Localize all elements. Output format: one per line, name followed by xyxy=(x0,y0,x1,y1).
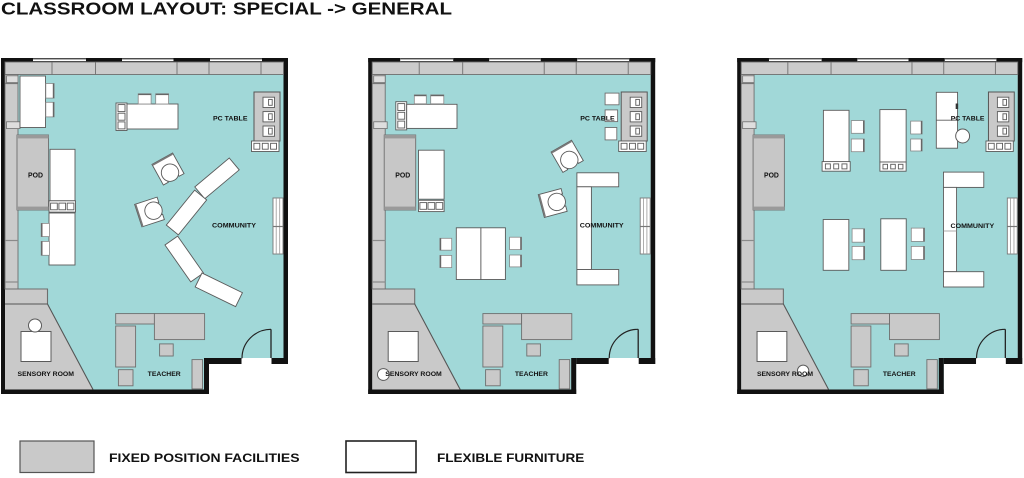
svg-text:CLASSROOM LAYOUT: SPECIAL -> G: CLASSROOM LAYOUT: SPECIAL -> GENERAL xyxy=(1,0,452,19)
svg-text:POD: POD xyxy=(764,172,779,179)
svg-text:SENSORY ROOM: SENSORY ROOM xyxy=(757,371,813,378)
svg-text:TEACHER: TEACHER xyxy=(515,371,548,378)
svg-text:FIXED POSITION FACILITIES: FIXED POSITION FACILITIES xyxy=(109,451,300,465)
svg-text:COMMUNITY: COMMUNITY xyxy=(212,223,256,230)
svg-text:PC TABLE: PC TABLE xyxy=(951,116,985,123)
svg-text:PC TABLE: PC TABLE xyxy=(213,116,248,123)
svg-text:PC TABLE: PC TABLE xyxy=(580,116,615,123)
svg-text:COMMUNITY: COMMUNITY xyxy=(580,223,624,230)
svg-text:COMMUNITY: COMMUNITY xyxy=(951,223,995,230)
svg-text:SENSORY ROOM: SENSORY ROOM xyxy=(18,371,75,378)
svg-text:TEACHER: TEACHER xyxy=(883,371,916,378)
svg-text:POD: POD xyxy=(28,172,43,179)
svg-text:TEACHER: TEACHER xyxy=(148,371,181,378)
svg-text:FLEXIBLE FURNITURE: FLEXIBLE FURNITURE xyxy=(437,451,584,465)
svg-text:SENSORY ROOM: SENSORY ROOM xyxy=(385,371,442,378)
svg-text:POD: POD xyxy=(395,172,410,179)
